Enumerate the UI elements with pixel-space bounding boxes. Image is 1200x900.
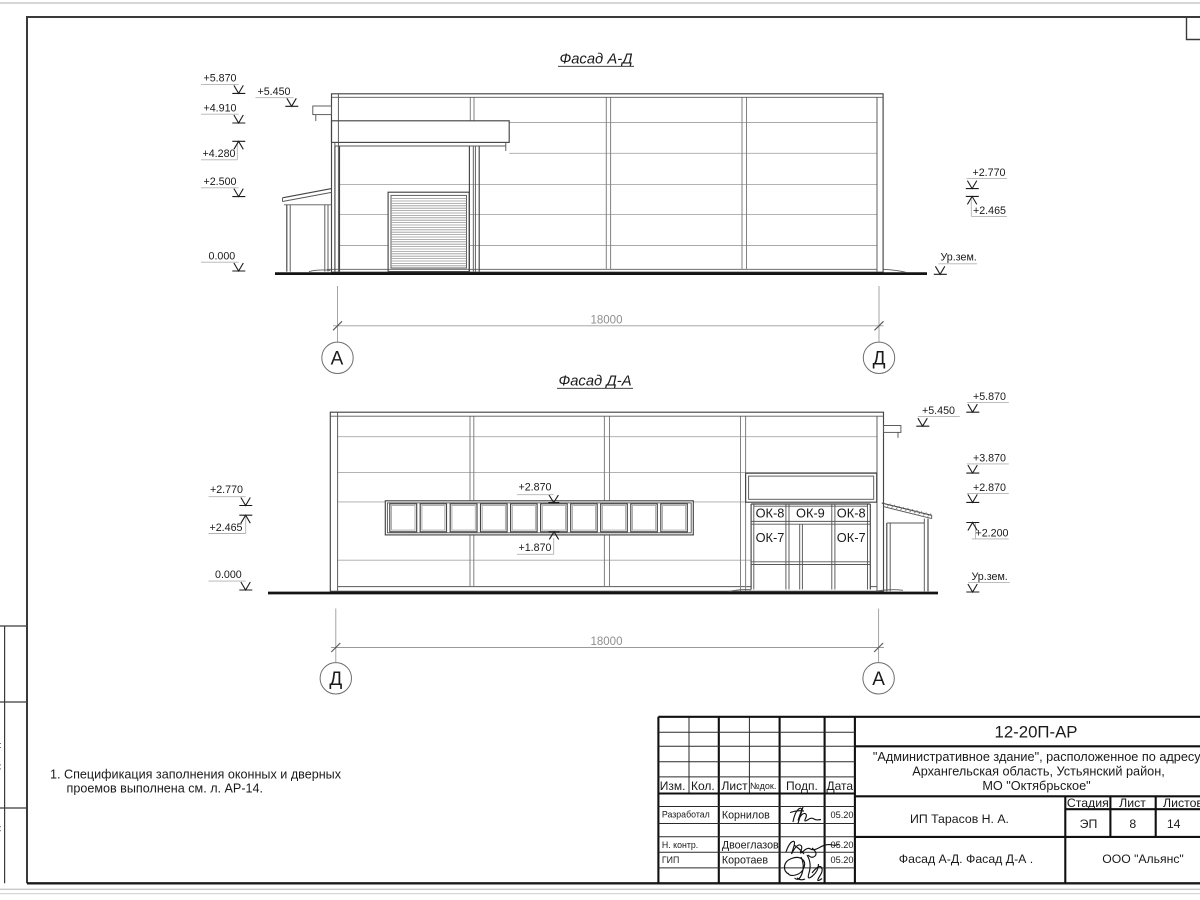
svg-text:№док.: №док. (750, 781, 776, 791)
svg-text:+2.870: +2.870 (973, 482, 1006, 494)
svg-text:+2.770: +2.770 (210, 484, 243, 496)
svg-text:Взам. инв. №: Взам. инв. № (0, 638, 2, 691)
svg-text:Кол.: Кол. (691, 779, 715, 793)
svg-text:ГИП: ГИП (662, 855, 679, 865)
svg-text:Инв. № подл.: Инв. № подл. (0, 819, 2, 872)
svg-text:05.20: 05.20 (831, 810, 854, 820)
svg-text:Ур.зем.: Ур.зем. (972, 571, 1008, 583)
svg-text:+2.770: +2.770 (973, 167, 1006, 179)
svg-text:Листов: Листов (1163, 796, 1200, 810)
svg-text:+2.870: +2.870 (519, 481, 552, 493)
svg-text:Лист: Лист (722, 779, 749, 793)
svg-text:12-20П-АР: 12-20П-АР (995, 723, 1078, 742)
svg-text:+4.280: +4.280 (203, 148, 236, 160)
svg-text:18000: 18000 (591, 636, 623, 648)
svg-text:Лист: Лист (1119, 796, 1146, 810)
svg-text:Изм.: Изм. (660, 779, 686, 793)
svg-text:ОК-7: ОК-7 (837, 530, 866, 545)
svg-text:А: А (331, 348, 344, 369)
svg-text:05.20: 05.20 (831, 855, 854, 865)
svg-text:Д: Д (873, 348, 886, 369)
svg-text:18000: 18000 (591, 314, 623, 326)
svg-text:ИП Тарасов Н. А.: ИП Тарасов Н. А. (910, 812, 1009, 826)
svg-text:ООО "Альянс": ООО "Альянс" (1102, 852, 1184, 866)
svg-text:+1.870: +1.870 (519, 542, 552, 554)
svg-text:ОК-8: ОК-8 (837, 505, 866, 520)
svg-text:1. Спецификация заполнения око: 1. Спецификация заполнения оконных и две… (50, 767, 342, 781)
svg-text:+2.500: +2.500 (204, 176, 237, 188)
svg-text:+5.450: +5.450 (922, 405, 955, 417)
svg-text:ОК-7: ОК-7 (756, 530, 785, 545)
svg-text:Разработал: Разработал (662, 810, 710, 820)
svg-text:ОК-9: ОК-9 (796, 505, 825, 520)
svg-text:Стадия: Стадия (1067, 796, 1109, 810)
svg-text:Н. контр.: Н. контр. (662, 840, 698, 850)
svg-text:Подп.: Подп. (786, 779, 818, 793)
svg-text:Подп. и дата: Подп. и дата (0, 730, 2, 780)
svg-text:Фасад А-Д. Фасад Д-А .: Фасад А-Д. Фасад Д-А . (899, 852, 1033, 866)
svg-text:Ур.зем.: Ур.зем. (941, 252, 977, 264)
svg-text:Д: Д (329, 669, 342, 690)
svg-text:0.000: 0.000 (209, 250, 236, 262)
svg-text:Фасад А-Д: Фасад А-Д (559, 52, 632, 68)
svg-text:8: 8 (1129, 817, 1136, 831)
svg-text:+5.450: +5.450 (258, 86, 291, 98)
svg-text:Корнилов: Корнилов (722, 809, 770, 821)
svg-text:ЭП: ЭП (1080, 817, 1098, 831)
svg-text:+3.870: +3.870 (973, 452, 1006, 464)
svg-text:А: А (872, 669, 885, 690)
svg-text:Двоеглазов: Двоеглазов (722, 839, 779, 851)
svg-text:+5.870: +5.870 (204, 73, 237, 85)
svg-text:14: 14 (1167, 817, 1181, 831)
svg-text:проемов выполнена см. л. АР-14: проемов выполнена см. л. АР-14. (67, 782, 264, 796)
svg-text:+5.870: +5.870 (973, 391, 1006, 403)
svg-text:+4.910: +4.910 (204, 102, 237, 114)
svg-text:+2.465: +2.465 (973, 205, 1006, 217)
svg-text:+2.200: +2.200 (976, 528, 1009, 540)
svg-text:"Административное здание", рас: "Административное здание", расположенное… (873, 750, 1200, 764)
svg-text:0.000: 0.000 (215, 569, 242, 581)
svg-text:МО "Октябрьское": МО "Октябрьское" (982, 779, 1090, 793)
svg-text:Фасад Д-А: Фасад Д-А (558, 374, 631, 390)
svg-text:Архангельская область, Устьянс: Архангельская область, Устьянский район, (912, 765, 1165, 779)
svg-text:Коротаев: Коротаев (722, 854, 768, 866)
svg-text:+2.465: +2.465 (210, 522, 243, 534)
svg-text:ОК-8: ОК-8 (756, 505, 785, 520)
svg-text:Дата: Дата (827, 779, 854, 793)
